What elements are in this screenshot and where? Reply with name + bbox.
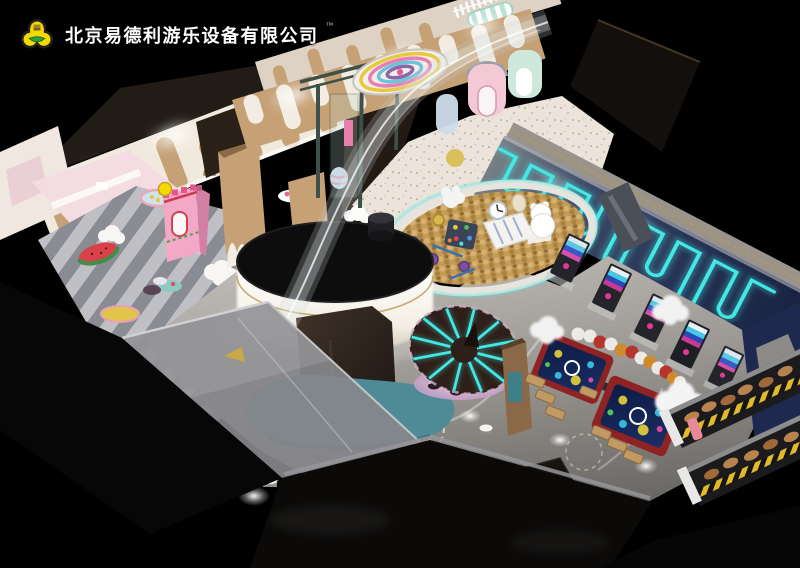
company-logo-icon <box>18 16 56 54</box>
yellow-round-rug <box>101 306 139 322</box>
pink-door-panel <box>344 120 353 146</box>
brand-header: 北京易德利游乐设备有限公司 ™ <box>18 16 336 54</box>
kitchen-table <box>96 182 108 190</box>
company-name: 北京易德利游乐设备有限公司 <box>65 22 319 48</box>
yellow-ball-pouf <box>446 149 464 167</box>
trademark-mark: ™ <box>326 21 334 30</box>
drum-chimney <box>368 213 394 242</box>
indoor-playground-3d-render <box>0 0 800 568</box>
playground-render-poster: 北京易德利游乐设备有限公司 ™ <box>0 0 800 568</box>
